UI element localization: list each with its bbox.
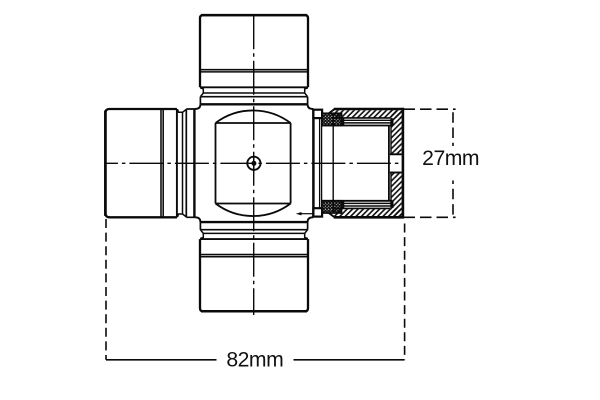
svg-text:82mm: 82mm	[226, 349, 283, 372]
svg-text:27mm: 27mm	[422, 147, 479, 170]
